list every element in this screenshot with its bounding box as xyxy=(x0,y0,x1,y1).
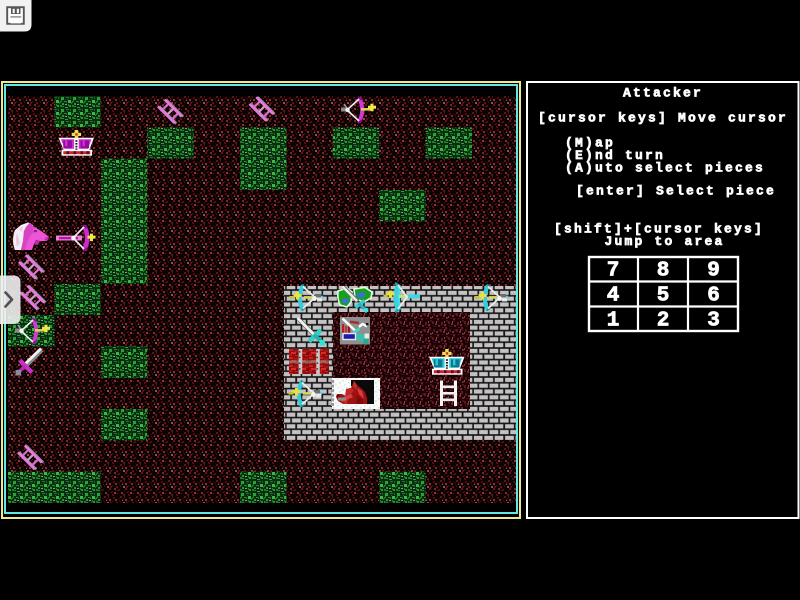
svg-text:[enter] Select piece: [enter] Select piece xyxy=(576,184,776,199)
svg-text:9: 9 xyxy=(707,260,720,283)
svg-text:4: 4 xyxy=(607,285,620,308)
svg-text:[cursor keys] Move cursor: [cursor keys] Move cursor xyxy=(538,111,788,126)
svg-text:3: 3 xyxy=(707,310,720,333)
svg-text:7: 7 xyxy=(607,260,620,283)
svg-text:1: 1 xyxy=(607,310,620,333)
svg-text:6: 6 xyxy=(707,285,720,308)
svg-text:8: 8 xyxy=(657,260,670,283)
svg-text:5: 5 xyxy=(657,285,670,308)
svg-text:Jump to area: Jump to area xyxy=(605,234,725,249)
svg-text:(A)uto select pieces: (A)uto select pieces xyxy=(565,161,765,176)
svg-text:2: 2 xyxy=(657,310,670,333)
svg-text:Attacker: Attacker xyxy=(623,86,703,101)
